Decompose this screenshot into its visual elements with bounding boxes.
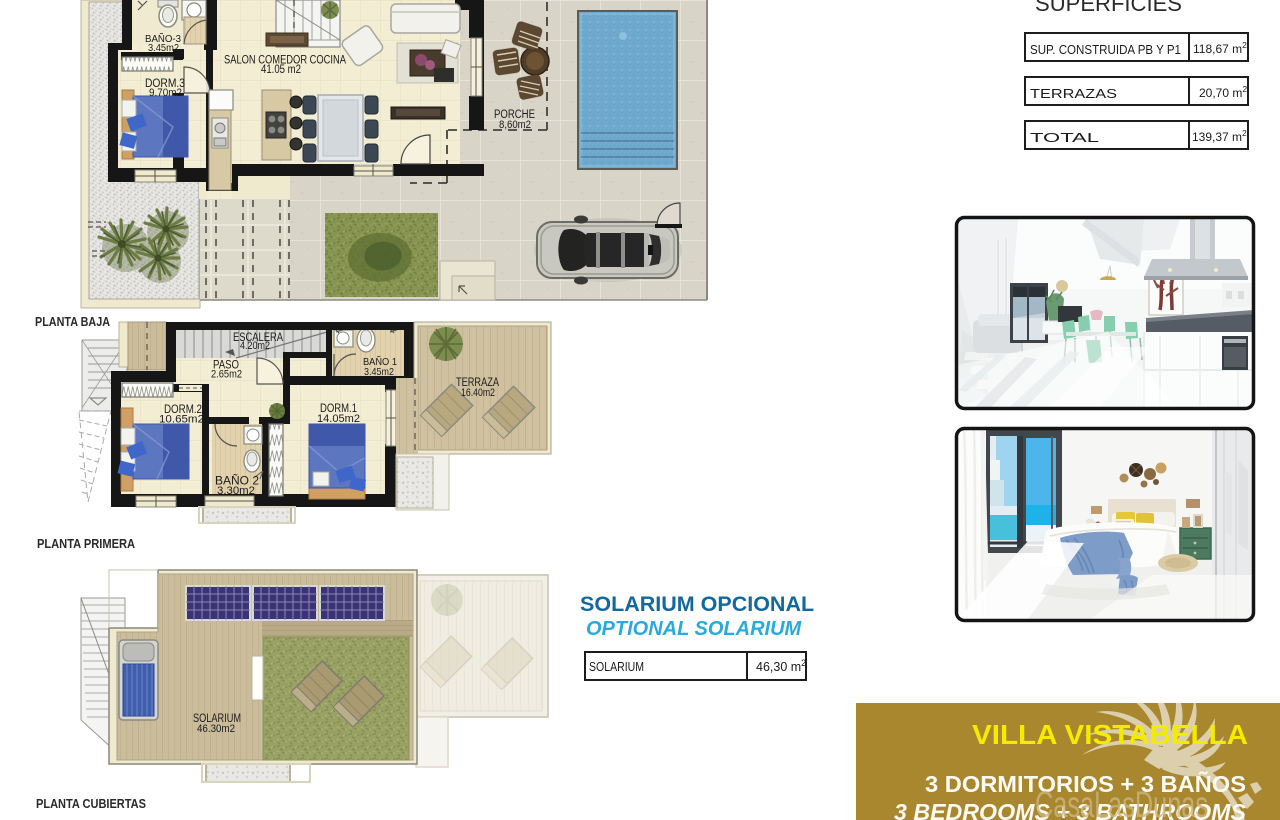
- svg-text:PLANTA PRIMERA: PLANTA PRIMERA: [37, 536, 136, 551]
- svg-text:CasaLasDunas: CasaLasDunas: [1035, 784, 1208, 820]
- svg-text:TOTAL: TOTAL: [1030, 131, 1099, 145]
- svg-text:10.65m2: 10.65m2: [159, 414, 204, 426]
- svg-text:SOLARIUM OPCIONAL: SOLARIUM OPCIONAL: [580, 592, 814, 616]
- svg-text:VILLA VISTABELLA: VILLA VISTABELLA: [972, 719, 1248, 750]
- svg-text:41.05 m2: 41.05 m2: [261, 64, 301, 76]
- svg-text:4.20m2: 4.20m2: [240, 340, 270, 352]
- svg-text:PLANTA BAJA: PLANTA BAJA: [35, 314, 111, 329]
- svg-text:8,60m2: 8,60m2: [499, 119, 531, 131]
- svg-text:9.70m2: 9.70m2: [149, 87, 182, 99]
- svg-text:139,37 m2: 139,37 m2: [1192, 128, 1247, 144]
- svg-text:20,70 m2: 20,70 m2: [1199, 84, 1247, 100]
- svg-text:14.05m2: 14.05m2: [317, 413, 360, 425]
- svg-text:3.45m2: 3.45m2: [148, 43, 179, 54]
- svg-text:3.45m2: 3.45m2: [364, 366, 394, 378]
- svg-text:SUPERFICIES: SUPERFICIES: [1035, 0, 1182, 16]
- svg-text:SOLARIUM: SOLARIUM: [589, 660, 644, 674]
- svg-text:46,30 m2: 46,30 m2: [756, 658, 806, 674]
- svg-text:PLANTA CUBIERTAS: PLANTA CUBIERTAS: [36, 796, 146, 811]
- svg-text:16.40m2: 16.40m2: [461, 387, 495, 399]
- svg-text:TERRAZAS: TERRAZAS: [1030, 87, 1117, 101]
- svg-text:2.65m2: 2.65m2: [211, 369, 242, 381]
- svg-text:118,67 m2: 118,67 m2: [1193, 40, 1247, 56]
- svg-text:OPTIONAL SOLARIUM: OPTIONAL SOLARIUM: [586, 618, 803, 640]
- svg-text:46.30m2: 46.30m2: [197, 723, 235, 735]
- svg-text:3.30m2: 3.30m2: [217, 485, 255, 497]
- svg-text:SUP. CONSTRUIDA PB Y P1: SUP. CONSTRUIDA PB Y P1: [1030, 43, 1181, 57]
